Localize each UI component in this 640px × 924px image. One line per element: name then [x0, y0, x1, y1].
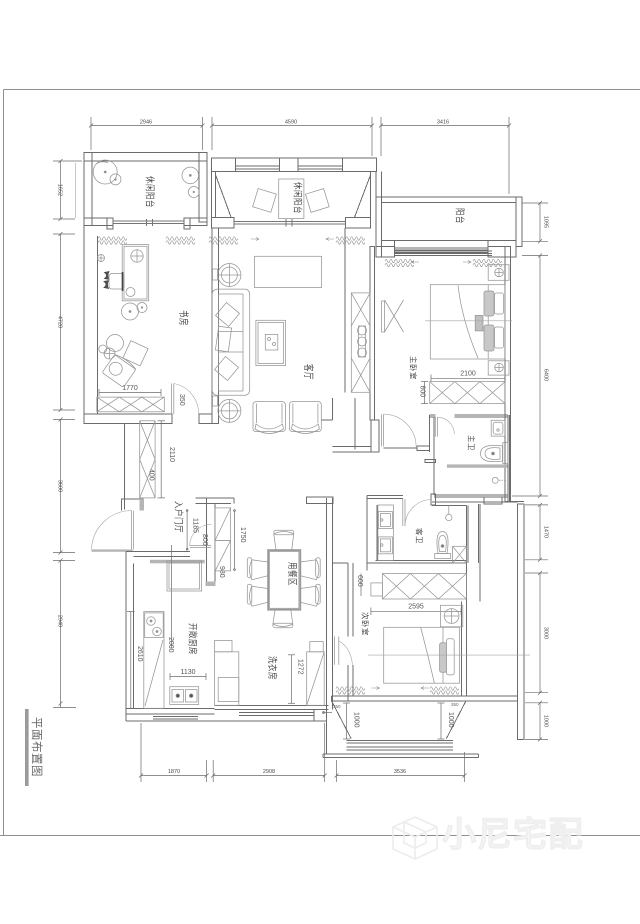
- svg-text:3536: 3536: [394, 769, 406, 775]
- svg-text:1652: 1652: [57, 184, 63, 196]
- svg-text:980: 980: [218, 566, 225, 578]
- svg-text:书房: 书房: [178, 310, 191, 326]
- svg-text:休闲阳台: 休闲阳台: [292, 182, 303, 214]
- svg-text:主卫: 主卫: [467, 435, 477, 451]
- svg-text:1470: 1470: [543, 526, 549, 538]
- svg-text:350: 350: [333, 704, 341, 709]
- svg-text:主卧室: 主卧室: [409, 356, 419, 380]
- svg-text:1000: 1000: [353, 712, 360, 728]
- svg-text:2110: 2110: [168, 447, 175, 462]
- svg-text:休闲阳台: 休闲阳台: [144, 176, 156, 208]
- svg-text:600: 600: [419, 386, 426, 398]
- svg-text:3416: 3416: [437, 120, 449, 126]
- svg-text:客厅: 客厅: [303, 364, 316, 380]
- svg-text:1185: 1185: [192, 518, 199, 533]
- svg-text:洗衣房: 洗衣房: [267, 656, 279, 680]
- svg-text:1130: 1130: [180, 669, 195, 676]
- svg-text:6400: 6400: [543, 369, 549, 381]
- svg-text:600: 600: [356, 575, 363, 587]
- svg-text:4590: 4590: [285, 120, 297, 126]
- svg-text:次卧室: 次卧室: [361, 612, 371, 636]
- svg-text:350: 350: [451, 702, 459, 707]
- svg-text:2595: 2595: [408, 604, 424, 611]
- svg-text:1095: 1095: [543, 216, 549, 228]
- svg-text:4720: 4720: [57, 316, 63, 328]
- svg-text:3000: 3000: [543, 627, 549, 639]
- svg-text:2940: 2940: [57, 615, 63, 627]
- svg-text:1870: 1870: [168, 769, 180, 775]
- svg-text:阳台: 阳台: [454, 208, 466, 224]
- svg-text:客卫: 客卫: [415, 528, 425, 544]
- svg-text:3600: 3600: [57, 480, 63, 492]
- svg-text:2000: 2000: [167, 637, 174, 653]
- svg-text:入户门厅: 入户门厅: [173, 501, 184, 533]
- svg-text:2946: 2946: [140, 120, 152, 126]
- svg-text:1750: 1750: [239, 527, 246, 543]
- svg-text:2100: 2100: [460, 371, 476, 378]
- svg-text:800: 800: [201, 534, 208, 546]
- svg-text:1272: 1272: [297, 659, 304, 675]
- svg-text:1000: 1000: [447, 712, 454, 728]
- svg-text:1000: 1000: [543, 715, 549, 727]
- svg-text:用餐区: 用餐区: [287, 562, 299, 586]
- svg-text:2908: 2908: [263, 769, 275, 775]
- svg-text:2610: 2610: [136, 646, 143, 662]
- svg-text:小尼宅配: 小尼宅配: [442, 815, 584, 854]
- svg-text:350: 350: [178, 394, 185, 406]
- svg-text:开敞厨房: 开敞厨房: [187, 623, 198, 655]
- svg-text:平面布置图: 平面布置图: [30, 717, 43, 777]
